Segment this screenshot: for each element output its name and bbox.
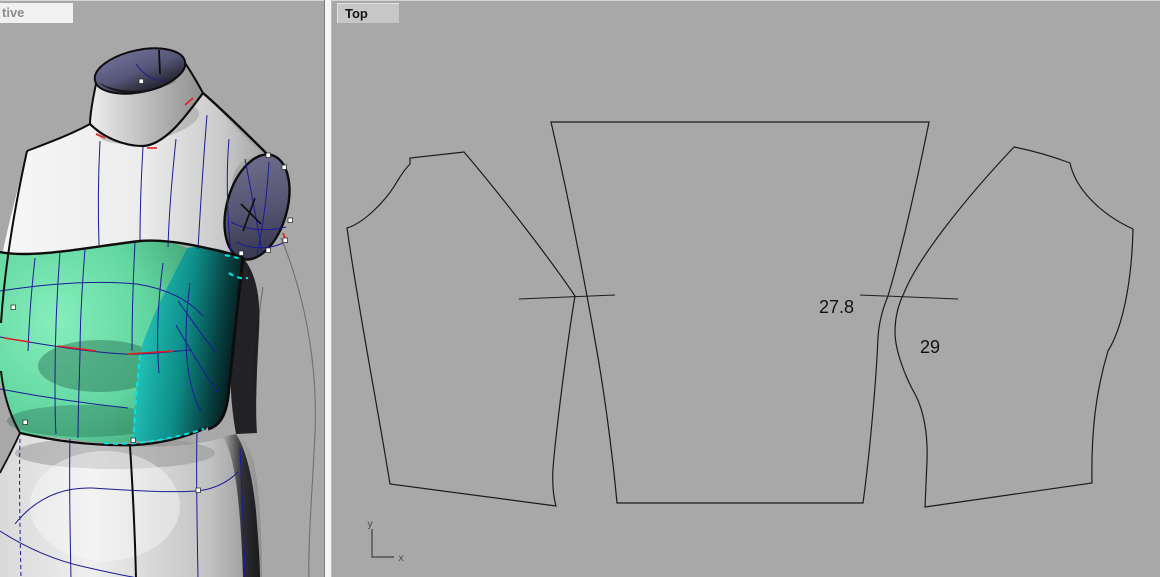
top-canvas[interactable]: 27.8 29 y x xyxy=(332,1,1160,577)
app-window: tive 27.8 29 y x Top xyxy=(0,0,1160,577)
dimension-value-27-8: 27.8 xyxy=(819,297,854,317)
axis-label-x: x xyxy=(398,553,404,564)
viewport-top[interactable]: 27.8 29 y x Top xyxy=(332,0,1160,577)
viewport-label-top[interactable]: Top xyxy=(337,3,399,23)
viewport-splitter[interactable] xyxy=(324,0,332,577)
dimension-value-29: 29 xyxy=(920,337,940,357)
viewport-label-perspective-text: tive xyxy=(2,5,24,20)
viewport-perspective[interactable]: tive xyxy=(0,0,324,577)
perspective-canvas[interactable] xyxy=(0,1,324,577)
viewport-label-perspective[interactable]: tive xyxy=(0,3,73,23)
axis-label-y: y xyxy=(367,519,373,530)
viewport-label-top-text: Top xyxy=(345,6,368,21)
